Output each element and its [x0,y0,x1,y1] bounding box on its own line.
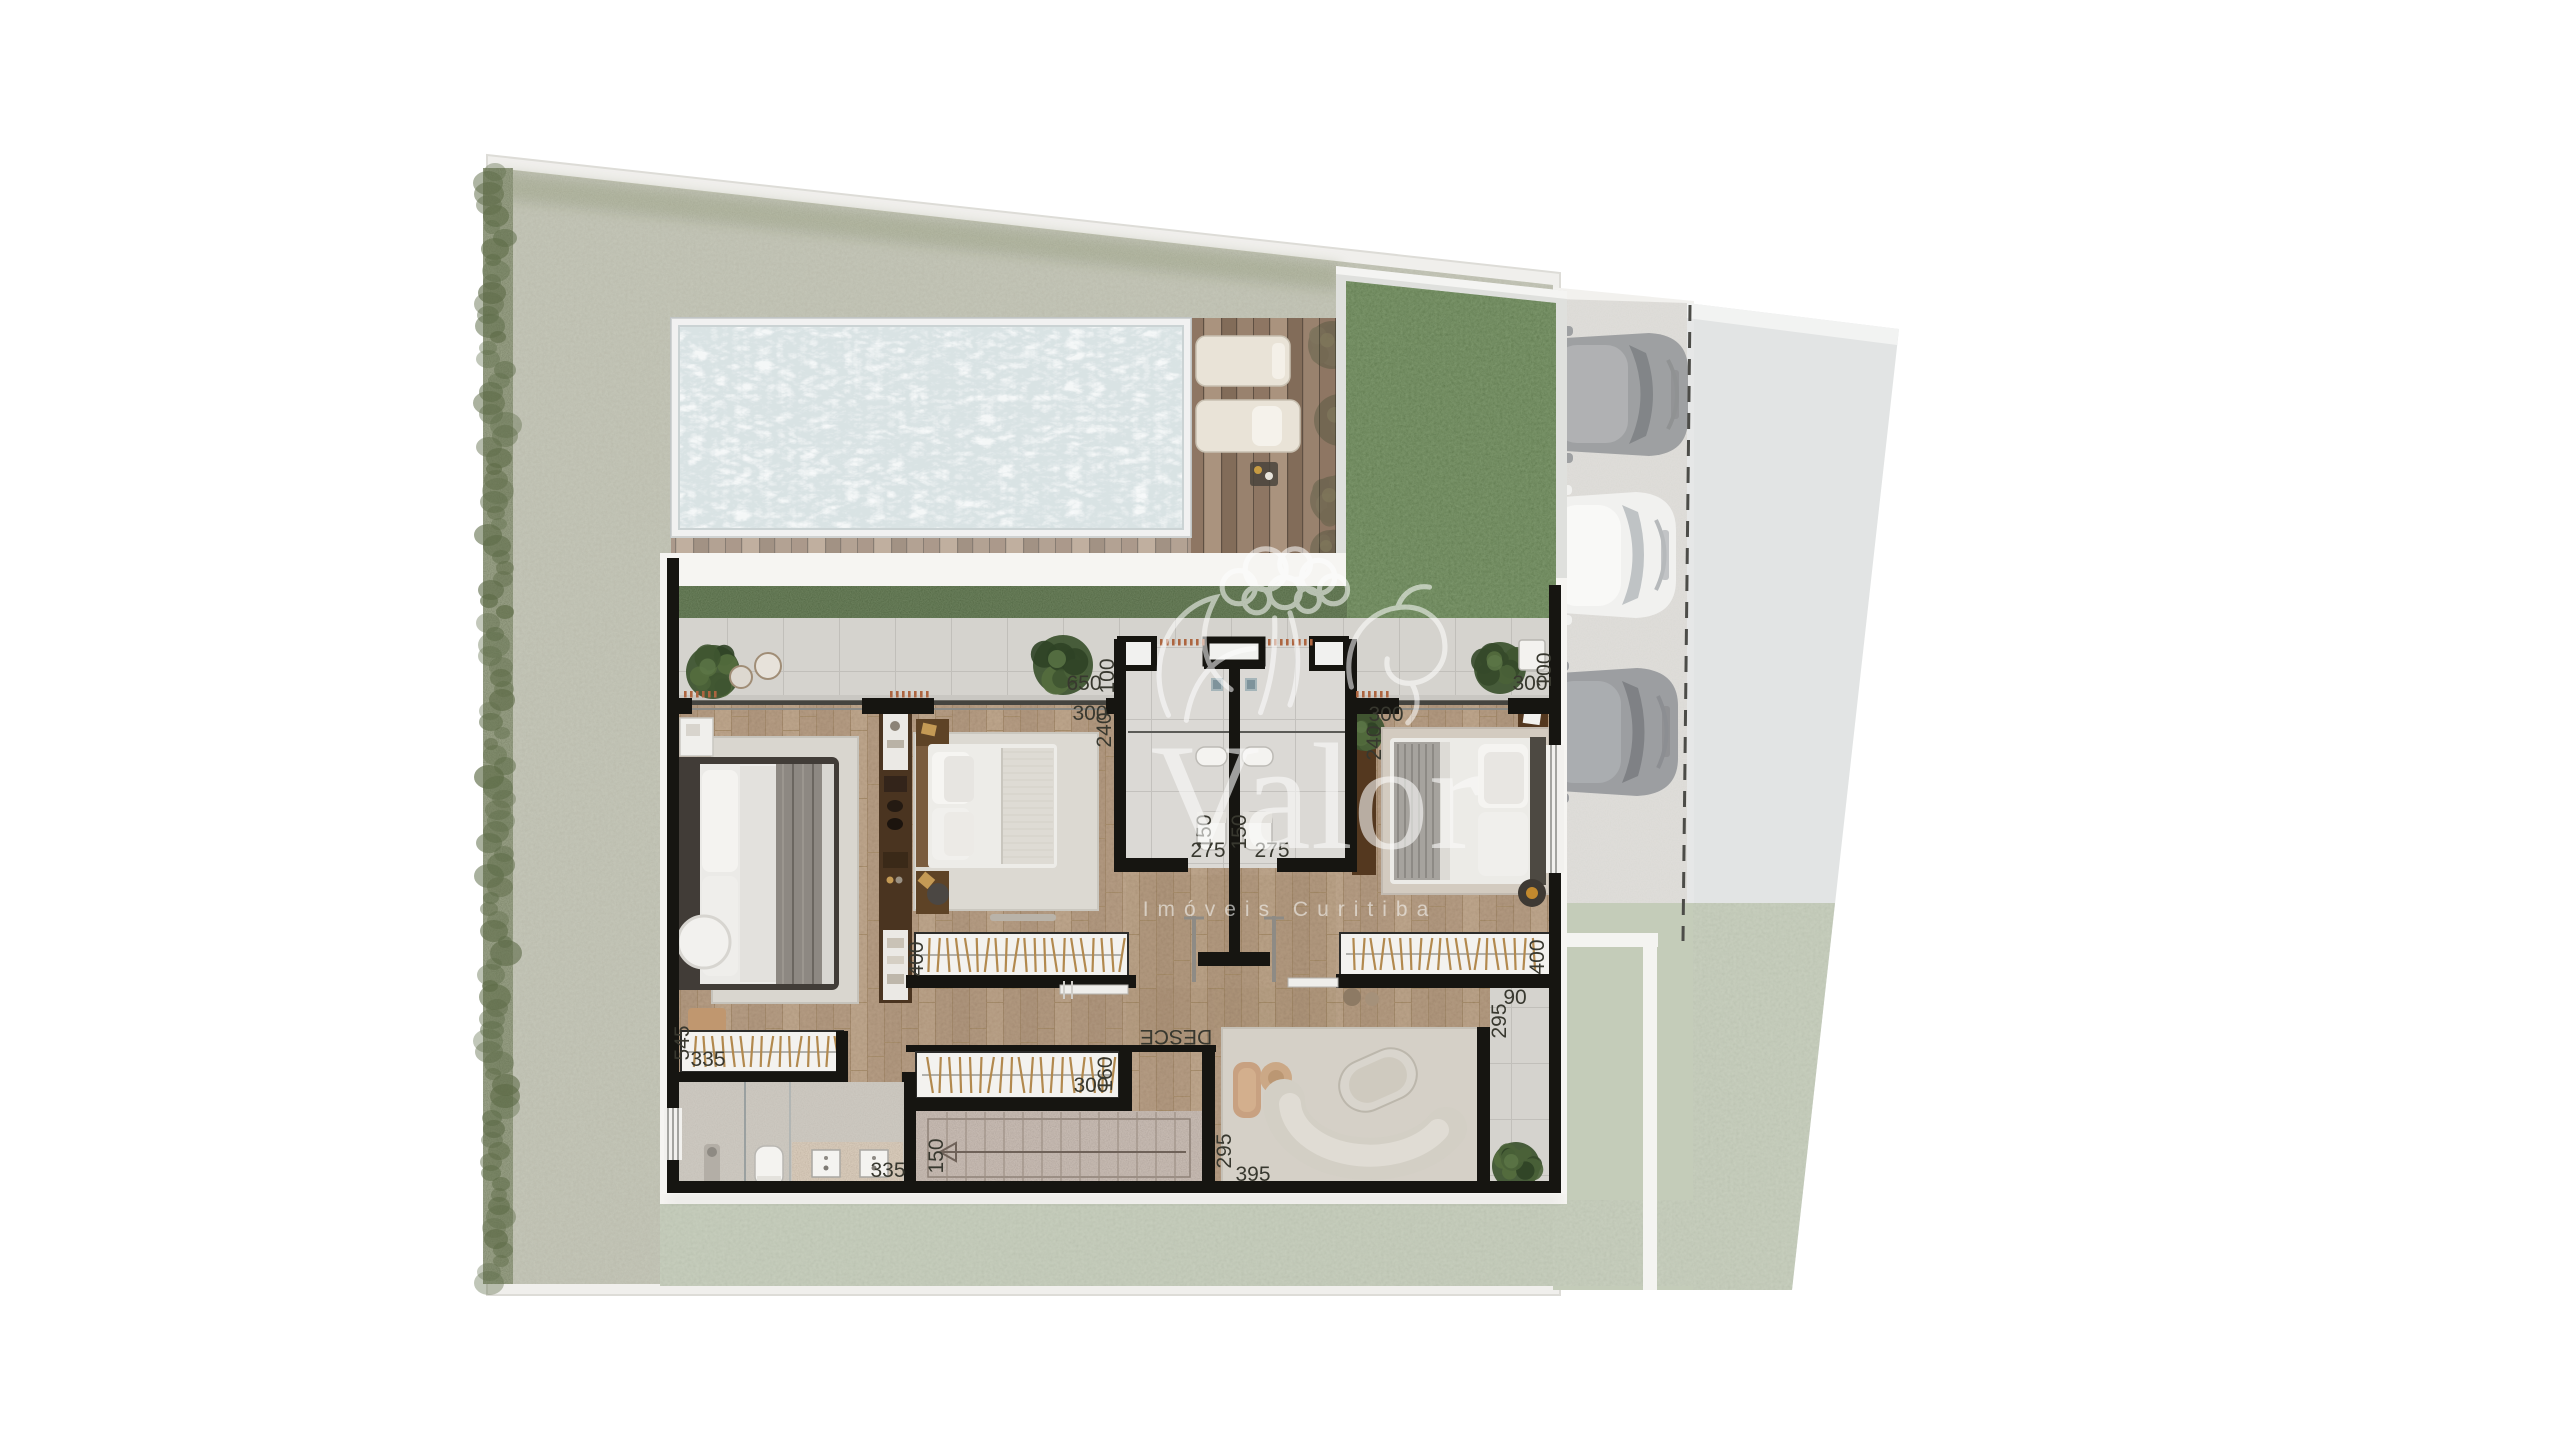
svg-text:100: 100 [1533,652,1556,687]
svg-text:335: 335 [690,1048,725,1071]
svg-text:335: 335 [870,1159,905,1182]
svg-text:100: 100 [1096,658,1119,693]
svg-text:400: 400 [1526,939,1549,974]
svg-text:Imóveis Curitiba: Imóveis Curitiba [1143,898,1438,921]
svg-text:295: 295 [1488,1003,1511,1038]
svg-text:400: 400 [905,941,928,976]
svg-text:DESCE: DESCE [1140,1025,1212,1048]
svg-text:395: 395 [1235,1163,1270,1186]
svg-text:240: 240 [1093,712,1116,747]
svg-text:295: 295 [1213,1133,1236,1168]
svg-text:160: 160 [1094,1056,1117,1091]
svg-text:150: 150 [925,1138,948,1173]
svg-text:Valor: Valor [1150,713,1479,881]
